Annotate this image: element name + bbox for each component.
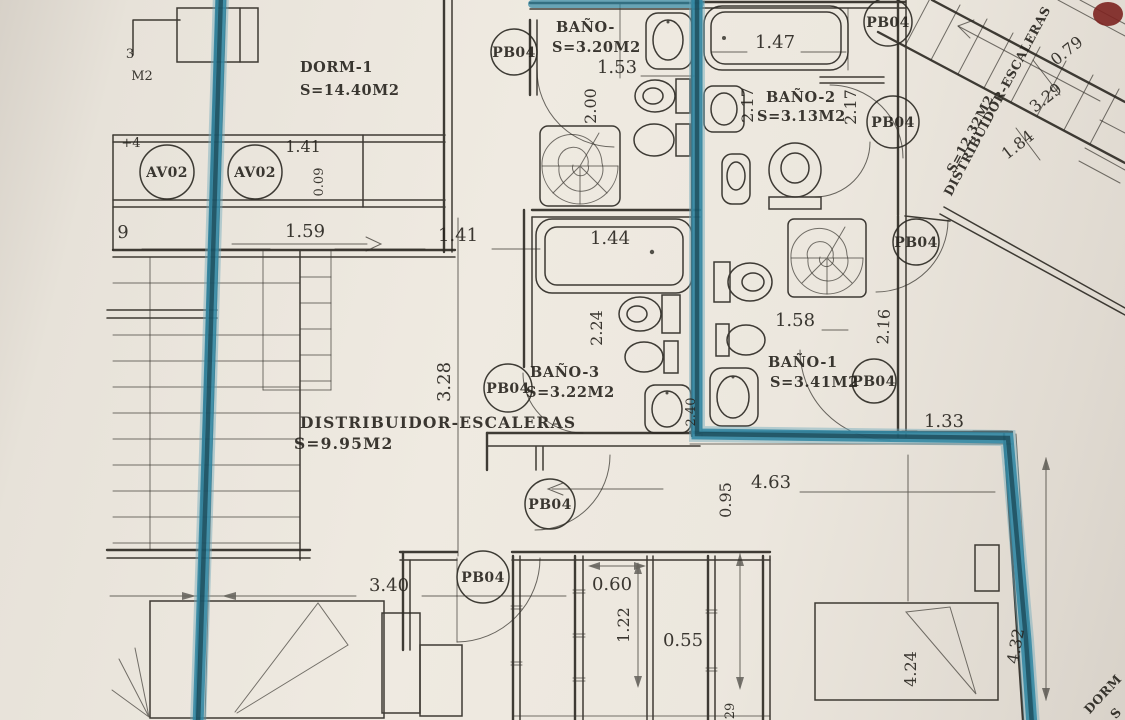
sink-icon: [710, 368, 758, 426]
tag-label: PB04: [492, 45, 535, 61]
dim-0-60: 0.60: [592, 574, 632, 595]
tag-label: PB04: [528, 497, 571, 513]
toilet-icon: [714, 262, 772, 302]
tag-label: PB04: [486, 381, 529, 397]
bidet-icon: [722, 154, 750, 204]
bidet-icon: [716, 324, 765, 356]
window-tag-av02: AV02: [140, 145, 194, 199]
room-area-bano1: S=3.41M2: [770, 374, 859, 391]
window-tag-av02: AV02: [228, 145, 282, 199]
stairs-left: [107, 250, 455, 560]
room-label-bano-top: BAÑO-: [556, 17, 615, 36]
toilet-icon: [635, 79, 690, 113]
dim-0-55: 0.55: [663, 630, 703, 651]
room-area-dorm1: S=14.40M2: [300, 82, 400, 99]
tag-label: PB04: [461, 570, 504, 586]
dim-3-28: 3.28: [434, 362, 455, 402]
dim-1-41-hall: 1.41: [438, 225, 478, 246]
nightstand: [975, 545, 999, 591]
dim-1-47: 1.47: [755, 32, 795, 53]
room-label-bano3: BAÑO-3: [530, 362, 600, 381]
dim-4-24: 4.24: [901, 651, 920, 687]
tag-label: PB04: [871, 115, 914, 131]
fragment-3: 3: [126, 47, 134, 62]
room-area-dorm-corner: S: [1107, 704, 1124, 720]
dim-0-95: 0.95: [716, 482, 735, 518]
room-area-bano2: S=3.13M2: [757, 108, 846, 125]
toilet-icon: [769, 143, 821, 209]
dim-1-59: 1.59: [285, 221, 325, 242]
bidet-icon: [634, 124, 690, 156]
room-label-bano2: BAÑO-2: [766, 87, 836, 106]
fragment-m2: M2: [131, 69, 153, 84]
door-tag-pb04: PB04: [491, 29, 537, 75]
dim-1-33: 1.33: [924, 411, 964, 432]
door-tag-pb04: PB04: [484, 364, 532, 412]
red-scan-mark: [1093, 2, 1123, 26]
door-tag-pb04: PB04: [525, 479, 575, 529]
tag-label: AV02: [233, 165, 276, 181]
door-tag-pb04: PB04: [867, 96, 919, 148]
door-tag-pb04: PB04: [864, 0, 912, 46]
fragment-29: 29: [723, 703, 738, 720]
floorplan-drawing: AV02 AV02 PB04 PB04 PB04 PB04 PB04 PB04 …: [0, 0, 1125, 720]
furniture: [112, 545, 999, 718]
dim-0-09: 0.09: [312, 168, 327, 197]
tag-label: PB04: [866, 15, 909, 31]
shower-spiral-icon: [788, 219, 866, 297]
dim-2-24: 2.24: [587, 310, 606, 346]
dim-2-17-b: 2.17: [841, 89, 860, 125]
dim-1-58: 1.58: [775, 310, 815, 331]
dim-2-17-a: 2.17: [738, 87, 757, 123]
bidet-icon: [625, 341, 678, 373]
wardrobe: [382, 613, 462, 716]
dim-2-00: 2.00: [581, 88, 600, 124]
room-area-distribuidor: S=9.95M2: [294, 434, 393, 453]
room-area-bano3: S=3.22M2: [526, 384, 615, 401]
dim-1-44: 1.44: [590, 228, 630, 249]
bed-left: [112, 601, 384, 718]
sink-icon: [646, 13, 692, 69]
dim-4-63: 4.63: [751, 472, 791, 493]
dim-1-22: 1.22: [614, 607, 633, 643]
door-tag-pb04: PB04: [457, 551, 509, 603]
fragment-9: 9: [117, 222, 128, 243]
tag-label: AV02: [145, 165, 188, 181]
dim-3-40: 3.40: [369, 575, 409, 596]
room-area-bano-top: S=3.20M2: [552, 39, 641, 56]
stair-direction-arrow-icon: [958, 20, 974, 38]
dim-2-16: 2.16: [873, 308, 894, 345]
room-label-distribuidor: DISTRIBUIDOR-ESCALERAS: [300, 413, 576, 432]
fragment-plus4: +4: [121, 136, 140, 151]
room-label-bano1: BAÑO-1: [768, 352, 838, 371]
dim-3-29: 3.29: [1026, 79, 1066, 116]
dim-2-40: 2.40: [684, 398, 699, 427]
dim-1-41-window: 1.41: [285, 137, 321, 156]
room-label-dorm1: DORM-1: [300, 59, 373, 76]
shower-spiral-icon: [540, 126, 620, 206]
tag-label: PB04: [894, 235, 937, 251]
floorplan-scan: AV02 AV02 PB04 PB04 PB04 PB04 PB04 PB04 …: [0, 0, 1125, 720]
dim-1-53: 1.53: [597, 57, 637, 78]
highlighted-wall-left: [198, 0, 221, 720]
door-tag-pb04: PB04: [893, 219, 939, 265]
toilet-icon: [619, 295, 680, 333]
dim-1-84: 1.84: [998, 126, 1038, 163]
